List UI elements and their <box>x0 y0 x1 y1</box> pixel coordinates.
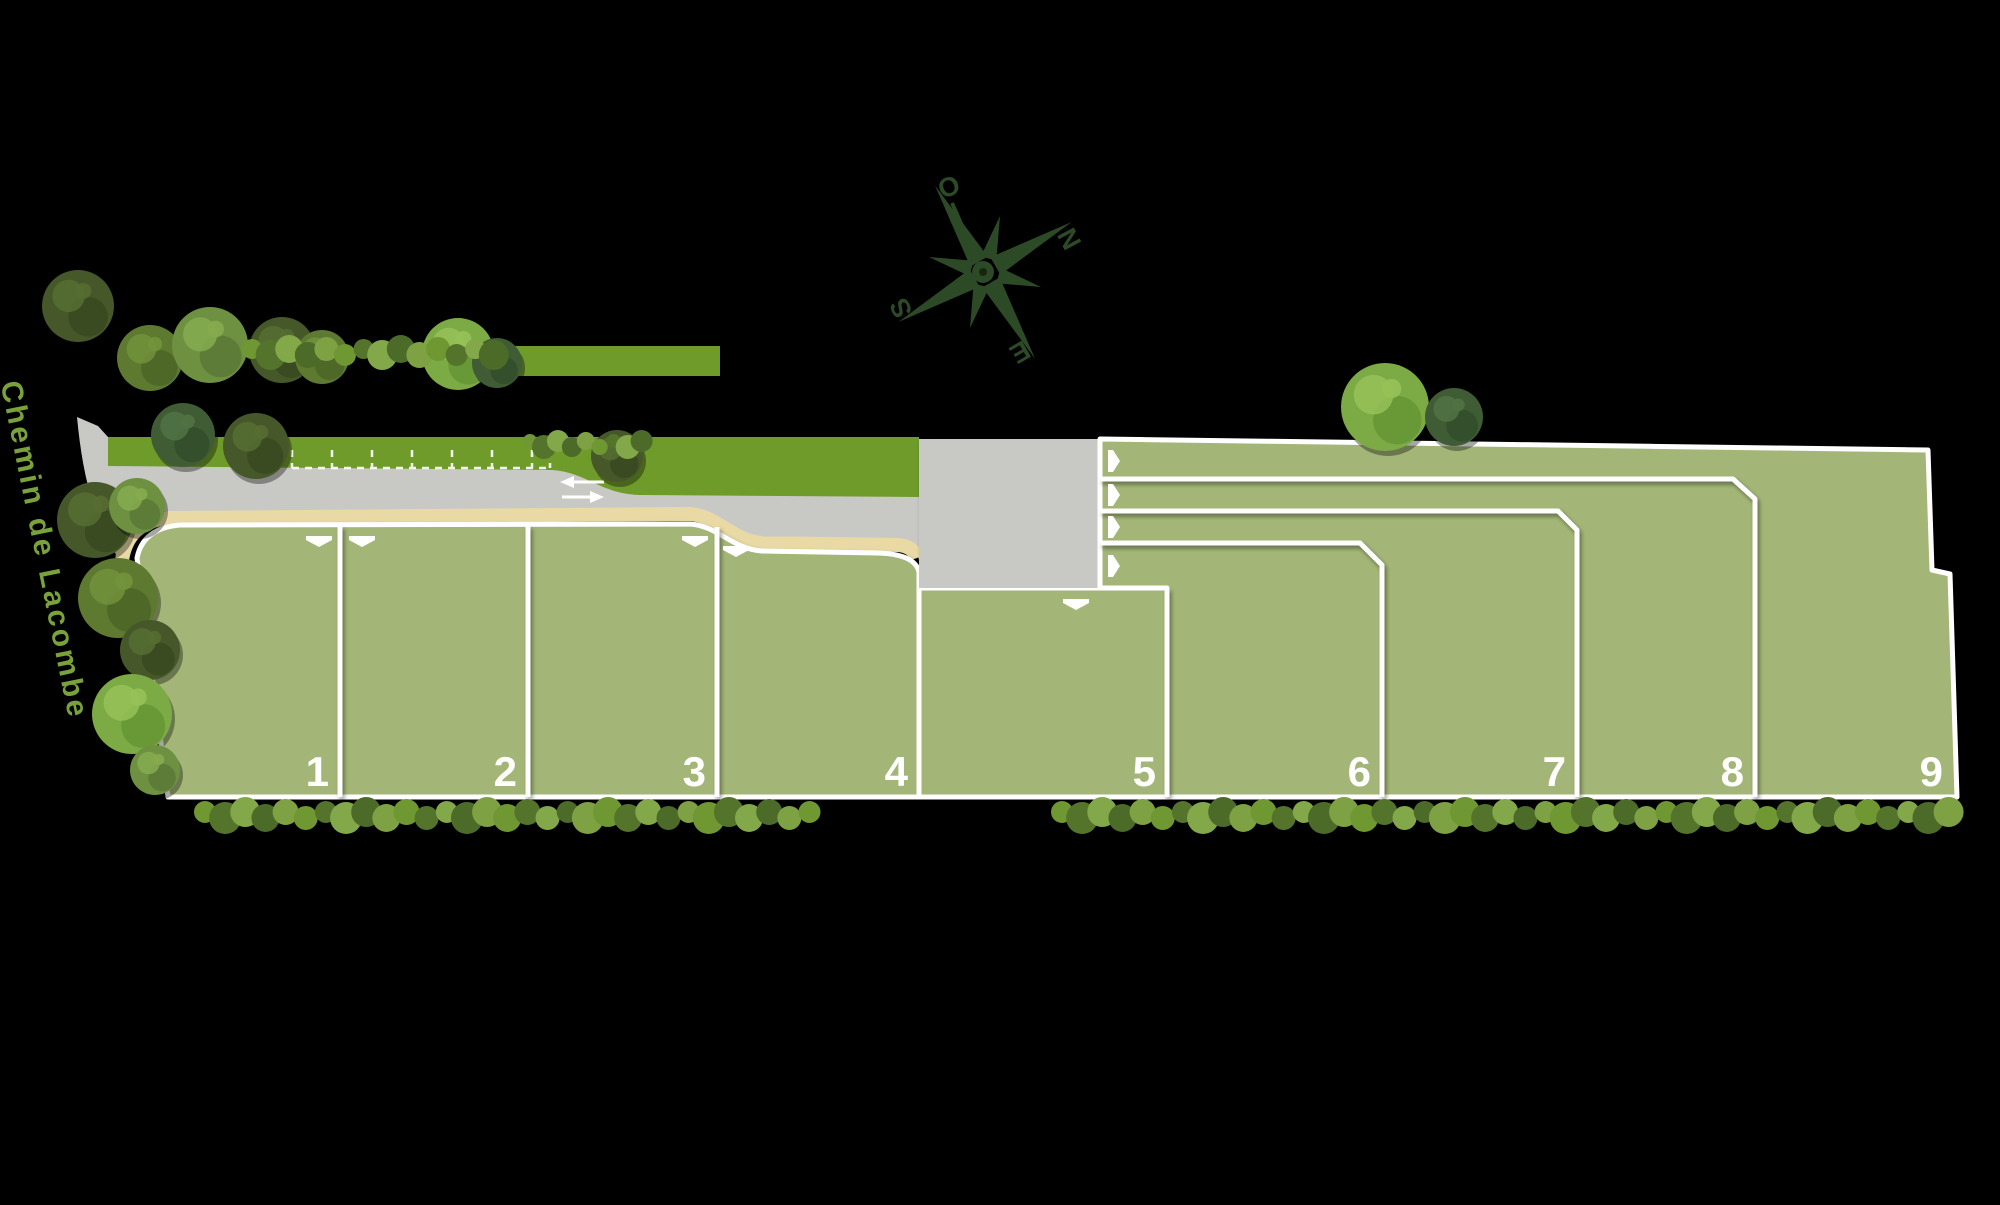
hedge-shrub <box>536 806 560 830</box>
lot-8-number: 8 <box>1721 748 1745 795</box>
tree-foliage <box>207 321 224 338</box>
tree-foliage <box>254 425 269 440</box>
compass-rose: O N E S <box>884 169 1087 369</box>
hedge-shrub <box>1634 806 1658 830</box>
lot-5-parcel <box>919 588 1167 797</box>
hedge-shrub <box>1151 806 1175 830</box>
tree-foliage <box>115 572 133 590</box>
access-court <box>919 439 1100 588</box>
lot-9-number: 9 <box>1920 748 1944 795</box>
hedge-shrub <box>294 806 318 830</box>
hedge-shrub <box>1934 797 1964 827</box>
tree-foliage <box>75 283 91 299</box>
tree-foliage <box>92 496 109 513</box>
lot-5-number: 5 <box>1133 748 1157 795</box>
compass-letter-south: S <box>884 293 919 322</box>
lot-4-number: 4 <box>885 748 909 795</box>
hedge-shrub <box>1272 806 1296 830</box>
tree-foliage <box>1452 398 1465 411</box>
tree-foliage <box>129 688 147 706</box>
hedge-shrub <box>799 801 821 823</box>
compass-star-icon <box>898 185 1071 358</box>
lot-7-number: 7 <box>1543 748 1567 795</box>
tree-foliage <box>153 754 164 765</box>
tree-foliage <box>181 415 195 429</box>
lot-6-number: 6 <box>1348 748 1372 795</box>
lots-6-9-block <box>1100 439 1957 797</box>
tree-foliage <box>148 337 163 352</box>
hedge-shrub <box>1393 806 1417 830</box>
compass-letter-west: O <box>934 169 965 205</box>
compass-letter-north: N <box>1051 223 1087 254</box>
tree-foliage <box>1382 379 1401 398</box>
lot-3-number: 3 <box>683 748 707 795</box>
tree-foliage <box>135 488 147 500</box>
lot-2-number: 2 <box>494 748 518 795</box>
hedge-shrub <box>415 806 439 830</box>
tree-foliage <box>148 631 161 644</box>
hedge-shrub <box>1755 806 1779 830</box>
grass-band <box>511 346 720 376</box>
compass-letter-east: E <box>1005 335 1036 370</box>
hedge-shrub <box>479 340 509 370</box>
hedge-shrub <box>446 344 468 366</box>
hedge-shrub <box>334 344 356 366</box>
hedge-shrub <box>777 806 801 830</box>
hedge-shrub <box>592 439 608 455</box>
hedge-shrub <box>631 430 653 452</box>
lot-1-number: 1 <box>306 748 330 795</box>
hedge-shrub <box>1513 806 1537 830</box>
site-plan: 1 2 3 4 5 6 7 8 9 <box>0 0 2000 1205</box>
hedge-shrub <box>656 806 680 830</box>
hedge-shrub <box>1876 806 1900 830</box>
